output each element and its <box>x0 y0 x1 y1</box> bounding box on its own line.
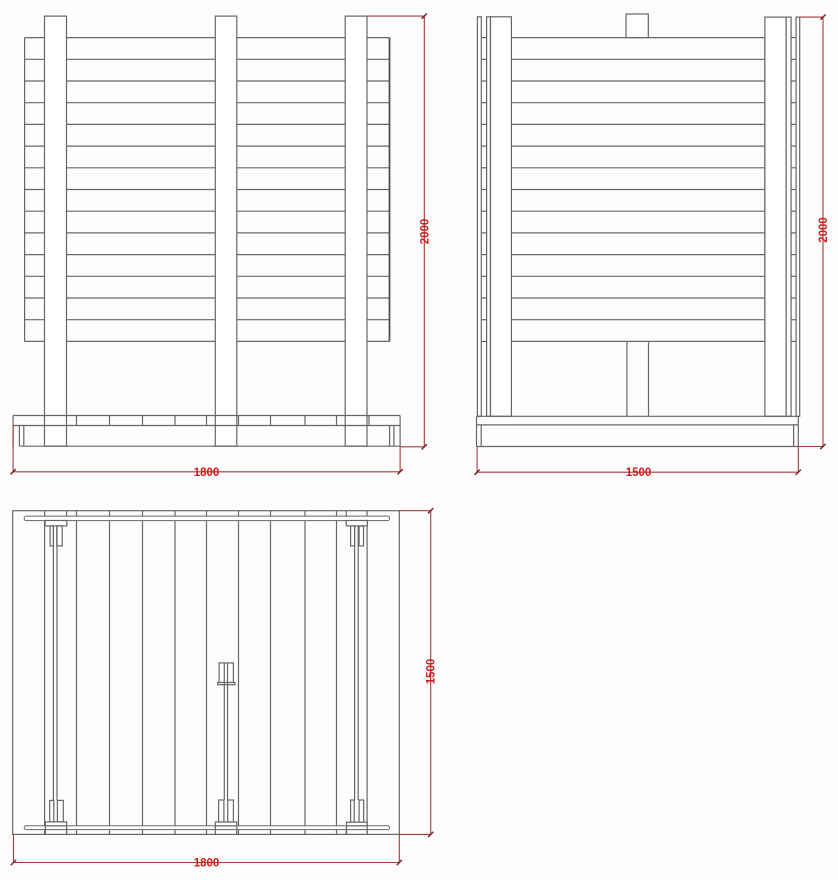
svg-text:1500: 1500 <box>426 659 438 685</box>
svg-text:1800: 1800 <box>194 858 220 870</box>
svg-text:2000: 2000 <box>419 219 431 245</box>
svg-text:2000: 2000 <box>818 217 830 243</box>
svg-text:1800: 1800 <box>194 467 220 479</box>
svg-text:1500: 1500 <box>626 467 652 479</box>
